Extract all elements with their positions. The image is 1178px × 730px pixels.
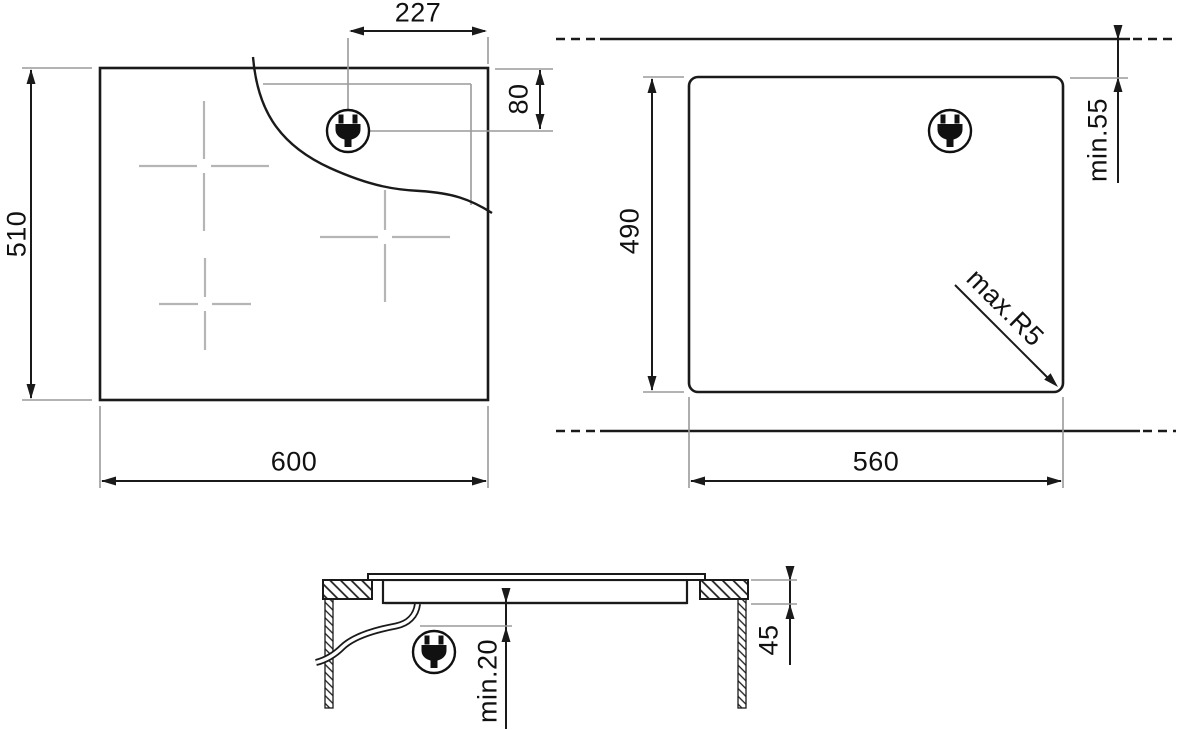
worktop-section-left [323, 580, 372, 599]
cutout-rect [689, 77, 1063, 392]
label-recess-depth: 45 [756, 624, 783, 655]
hob-outline [100, 68, 488, 400]
hob-glass-section [368, 574, 705, 580]
power-plug-icon [413, 631, 455, 673]
hob-body-section [383, 580, 687, 603]
dimension-cutout-height [643, 77, 684, 392]
label-plug-from-right: 227 [395, 0, 442, 27]
section-view [316, 566, 797, 729]
label-wall-clearance: min.55 [1085, 98, 1112, 182]
power-plug-icon [929, 110, 971, 152]
dimension-plug-from-right [349, 27, 488, 65]
label-clearance-below: min.20 [475, 639, 502, 723]
label-hob-height: 510 [4, 211, 31, 258]
label-hob-width: 600 [271, 449, 318, 476]
worktop-cutout-view [556, 25, 1176, 488]
installation-diagram-page: 227 510 600 80 490 560 min.55 max.R5 min… [0, 0, 1178, 730]
hob-top-view [22, 27, 553, 489]
cabinet-wall-right [738, 599, 746, 708]
worktop-section-right [700, 580, 748, 599]
installation-diagram [0, 0, 1178, 730]
label-cutout-height: 490 [617, 208, 644, 255]
label-plug-from-top: 80 [506, 83, 533, 114]
label-cutout-width: 560 [853, 449, 900, 476]
power-plug-icon [327, 110, 369, 152]
dimension-hob-height [22, 68, 92, 400]
